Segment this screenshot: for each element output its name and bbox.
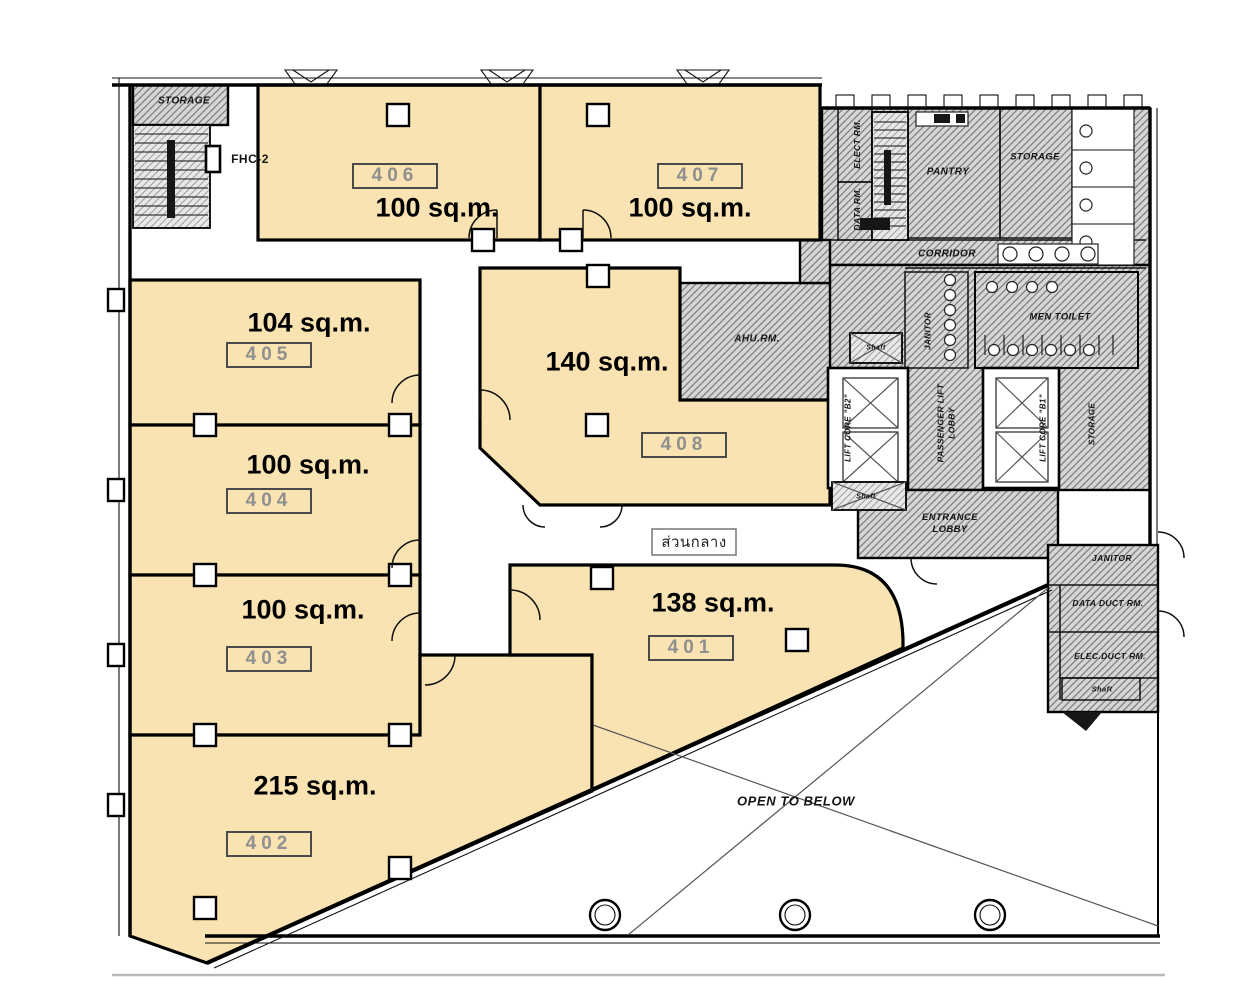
floor-plan: 100 sq.m. 100 sq.m. 104 sq.m. 100 sq.m. … xyxy=(0,0,1252,981)
data-rm-label: DATA RM. xyxy=(852,187,862,230)
unit-403-area: 100 sq.m. xyxy=(241,595,364,626)
parapet-bumps xyxy=(836,95,1142,108)
open-to-below-label: OPEN TO BELOW xyxy=(737,794,855,809)
shaft-a-label: Shaft xyxy=(866,345,886,352)
unit-401-area: 138 sq.m. xyxy=(651,588,774,619)
lift-core-b2-label: LIFT CORE "B2" xyxy=(844,394,853,462)
unit-402-area: 215 sq.m. xyxy=(253,771,376,802)
unit-403-number: 403 xyxy=(226,646,312,672)
floor-plan-drawing xyxy=(0,0,1252,981)
elec-duct-rm-label: ELEC.DUCT RM. xyxy=(1074,651,1146,661)
storage-top-label: STORAGE xyxy=(1010,152,1060,163)
data-duct-rm-label: DATA DUCT RM. xyxy=(1072,598,1143,608)
fhc-cabinet xyxy=(206,146,220,172)
shaft-b-label: Shaft xyxy=(856,494,876,501)
storage-right-label: STORAGE xyxy=(1088,403,1097,445)
unit-404-number: 404 xyxy=(226,488,312,514)
unit-408-number: 408 xyxy=(641,432,727,458)
unit-408-area: 140 sq.m. xyxy=(545,347,668,378)
shaft-right-label: Shaft xyxy=(1092,685,1113,694)
janitor-right-label: JANITOR xyxy=(1092,553,1132,563)
unit-405-area: 104 sq.m. xyxy=(247,308,370,339)
janitor-left-label: JANITOR xyxy=(924,312,933,350)
open-area-x-line xyxy=(593,725,1158,926)
ahu-rm-label: AHU.RM. xyxy=(734,334,780,345)
men-toilet-label: MEN TOILET xyxy=(1029,312,1090,323)
unit-405-number: 405 xyxy=(226,342,312,368)
window-marks xyxy=(285,70,729,84)
common-area-thai-label: ส่วนกลาง xyxy=(661,530,726,554)
pantry-label: PANTRY xyxy=(927,167,970,178)
elect-rm-label: ELECT RM. xyxy=(852,119,862,168)
storage-top-left-label: STORAGE xyxy=(158,96,210,107)
unit-406-number: 406 xyxy=(352,163,438,189)
fhc-label: FHC-2 xyxy=(231,152,269,166)
unit-402-number: 402 xyxy=(226,831,312,857)
passenger-lift-lobby-label: PASSENGER LIFT LOBBY xyxy=(935,383,956,463)
corridor-label: CORRIDOR xyxy=(918,249,976,260)
unit-401-number: 401 xyxy=(648,635,734,661)
unit-407-number: 407 xyxy=(657,163,743,189)
lift-core-b1-label: LIFT CORE "B1" xyxy=(1039,394,1048,462)
entrance-lobby-label: ENTRANCE LOBBY xyxy=(917,512,983,536)
unit-406-area: 100 sq.m. xyxy=(375,193,498,224)
unit-407-area: 100 sq.m. xyxy=(628,193,751,224)
unit-404-area: 100 sq.m. xyxy=(246,450,369,481)
